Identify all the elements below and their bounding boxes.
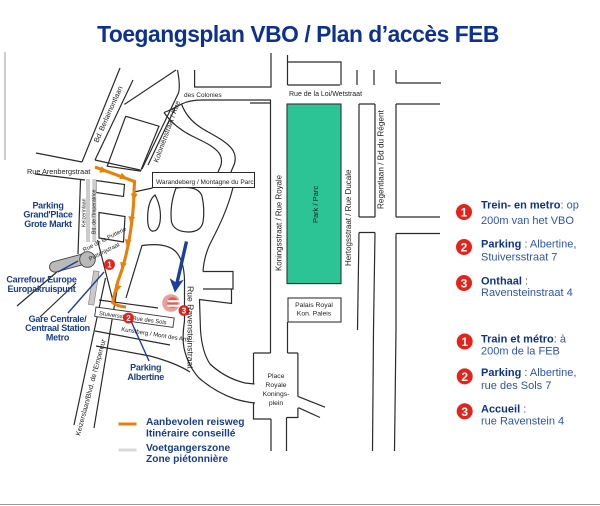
svg-text:Bd. Berlaimontlaan: Bd. Berlaimontlaan: [92, 85, 125, 144]
svg-text:plein: plein: [269, 400, 284, 407]
svg-text:Park / Parc: Park / Parc: [311, 186, 320, 223]
svg-text:2: 2: [461, 241, 468, 255]
svg-text:Train et métro: à: Train et métro: à: [481, 334, 567, 346]
svg-text:Voetgangerszone: Voetgangerszone: [146, 443, 230, 454]
svg-text:Warandeberg / Montagne du Parc: Warandeberg / Montagne du Parc: [156, 179, 254, 186]
svg-text:des Colonies: des Colonies: [184, 92, 222, 99]
svg-text:Bd. de l'Imperatrice: Bd. de l'Imperatrice: [91, 189, 97, 234]
svg-text:Rue Arenbergstraat: Rue Arenbergstraat: [27, 167, 90, 176]
svg-text:Europakruispunt: Europakruispunt: [8, 284, 76, 294]
svg-text:Konings-: Konings-: [263, 391, 290, 398]
svg-text:1: 1: [461, 335, 468, 349]
svg-text:1: 1: [107, 261, 112, 270]
svg-text:Hertogsstraat / Rue Ducale: Hertogsstraat / Rue Ducale: [344, 169, 353, 266]
svg-text:1: 1: [461, 206, 468, 220]
svg-text:Parking : Albertine,: Parking : Albertine,: [481, 239, 576, 251]
svg-text:Metro: Metro: [46, 333, 70, 343]
svg-text:Regentlaan / Bd du Régent: Regentlaan / Bd du Régent: [377, 109, 386, 209]
svg-text:Kunstberg / Mont des Arts: Kunstberg / Mont des Arts: [121, 327, 190, 344]
svg-text:Parking : Albertine,: Parking : Albertine,: [481, 367, 576, 379]
svg-text:Toegangsplan VBO / Plan d’accè: Toegangsplan VBO / Plan d’accès FEB: [97, 21, 499, 47]
svg-text:Rue Ravensteinstraat: Rue Ravensteinstraat: [186, 286, 196, 369]
svg-text:Accueil :: Accueil :: [481, 404, 526, 416]
svg-text:2: 2: [126, 314, 131, 323]
svg-text:Itinéraire conseillé: Itinéraire conseillé: [146, 428, 236, 439]
svg-text:rue des Sols 7: rue des Sols 7: [481, 380, 551, 392]
svg-text:rue Ravenstein 4: rue Ravenstein 4: [481, 416, 564, 428]
svg-text:Ravensteinstraat 4: Ravensteinstraat 4: [481, 287, 573, 299]
svg-text:Koloniënstraat / Rue: Koloniënstraat / Rue: [151, 99, 182, 163]
svg-text:Keizerslaan/Blvd. de l'Empereu: Keizerslaan/Blvd. de l'Empereur: [75, 338, 108, 436]
svg-text:Grote Markt: Grote Markt: [24, 219, 72, 229]
svg-text:Palais Royal: Palais Royal: [295, 302, 333, 309]
svg-text:Albertine: Albertine: [127, 372, 164, 382]
svg-text:Rue de la Loi/Wetstraat: Rue de la Loi/Wetstraat: [289, 91, 362, 98]
svg-text:Koningsstraat / Rue Royale: Koningsstraat / Rue Royale: [275, 174, 284, 271]
svg-text:Aanbevolen reisweg: Aanbevolen reisweg: [146, 417, 245, 428]
svg-text:Kon. Paleis: Kon. Paleis: [297, 311, 332, 318]
svg-text:3: 3: [461, 405, 468, 419]
svg-text:Carrefour Europe: Carrefour Europe: [6, 275, 76, 285]
svg-text:Royale: Royale: [265, 382, 286, 389]
svg-text:3: 3: [461, 277, 468, 291]
svg-text:Zone piétonnière: Zone piétonnière: [146, 454, 228, 465]
svg-text:Place: Place: [267, 373, 284, 380]
svg-text:Onthaal :: Onthaal :: [481, 276, 528, 288]
svg-text:Trein- en metro: op: Trein- en metro: op: [481, 200, 579, 212]
svg-text:Stuiversstraat 7: Stuiversstraat 7: [481, 252, 557, 264]
svg-text:200m de la FEB: 200m de la FEB: [481, 346, 560, 358]
svg-text:Keizerinlaan: Keizerinlaan: [82, 198, 88, 227]
svg-text:2: 2: [461, 370, 468, 384]
svg-text:200m van het VBO: 200m van het VBO: [481, 215, 574, 227]
svg-text:Parking: Parking: [130, 363, 161, 373]
